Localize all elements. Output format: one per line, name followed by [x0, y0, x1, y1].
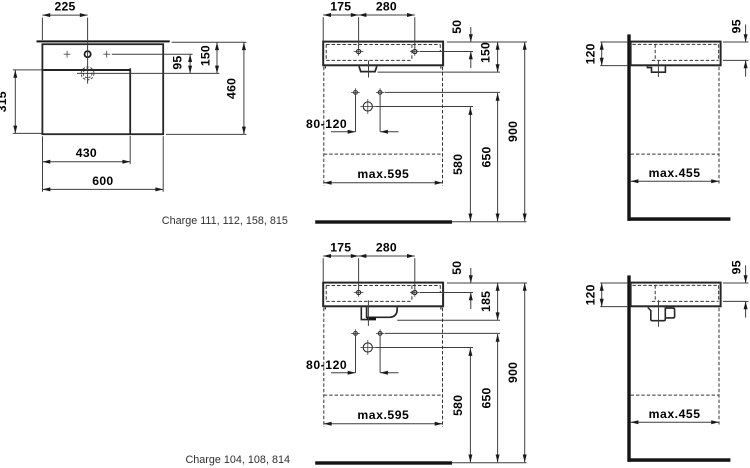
svg-text:315: 315 [0, 91, 9, 112]
svg-text:900: 900 [506, 362, 520, 383]
svg-text:650: 650 [479, 146, 493, 167]
svg-text:175: 175 [330, 241, 351, 255]
svg-text:80-120: 80-120 [306, 117, 347, 131]
svg-text:175: 175 [330, 0, 351, 14]
svg-text:95: 95 [171, 56, 185, 70]
svg-text:150: 150 [199, 45, 213, 66]
svg-text:580: 580 [451, 154, 465, 175]
svg-text:max.455: max.455 [649, 166, 701, 180]
svg-text:max.595: max.595 [357, 408, 409, 422]
svg-text:185: 185 [479, 291, 493, 312]
svg-text:900: 900 [506, 121, 520, 142]
svg-text:Charge 104, 108, 814: Charge 104, 108, 814 [186, 454, 290, 466]
svg-text:460: 460 [225, 78, 239, 99]
svg-text:max.455: max.455 [649, 407, 701, 421]
svg-text:280: 280 [376, 0, 397, 14]
svg-text:120: 120 [583, 43, 597, 64]
svg-text:max.595: max.595 [357, 167, 409, 181]
svg-text:600: 600 [92, 174, 113, 188]
svg-text:430: 430 [76, 146, 97, 160]
svg-text:Charge 111, 112, 158, 815: Charge 111, 112, 158, 815 [162, 215, 288, 227]
svg-text:150: 150 [479, 42, 493, 63]
svg-text:280: 280 [376, 241, 397, 255]
svg-text:225: 225 [54, 0, 75, 14]
svg-text:580: 580 [451, 395, 465, 416]
svg-text:120: 120 [583, 284, 597, 305]
svg-text:95: 95 [730, 260, 744, 274]
svg-text:50: 50 [450, 20, 464, 34]
svg-text:50: 50 [450, 261, 464, 275]
svg-text:80-120: 80-120 [306, 358, 347, 372]
svg-text:95: 95 [730, 19, 744, 33]
svg-text:650: 650 [479, 387, 493, 408]
